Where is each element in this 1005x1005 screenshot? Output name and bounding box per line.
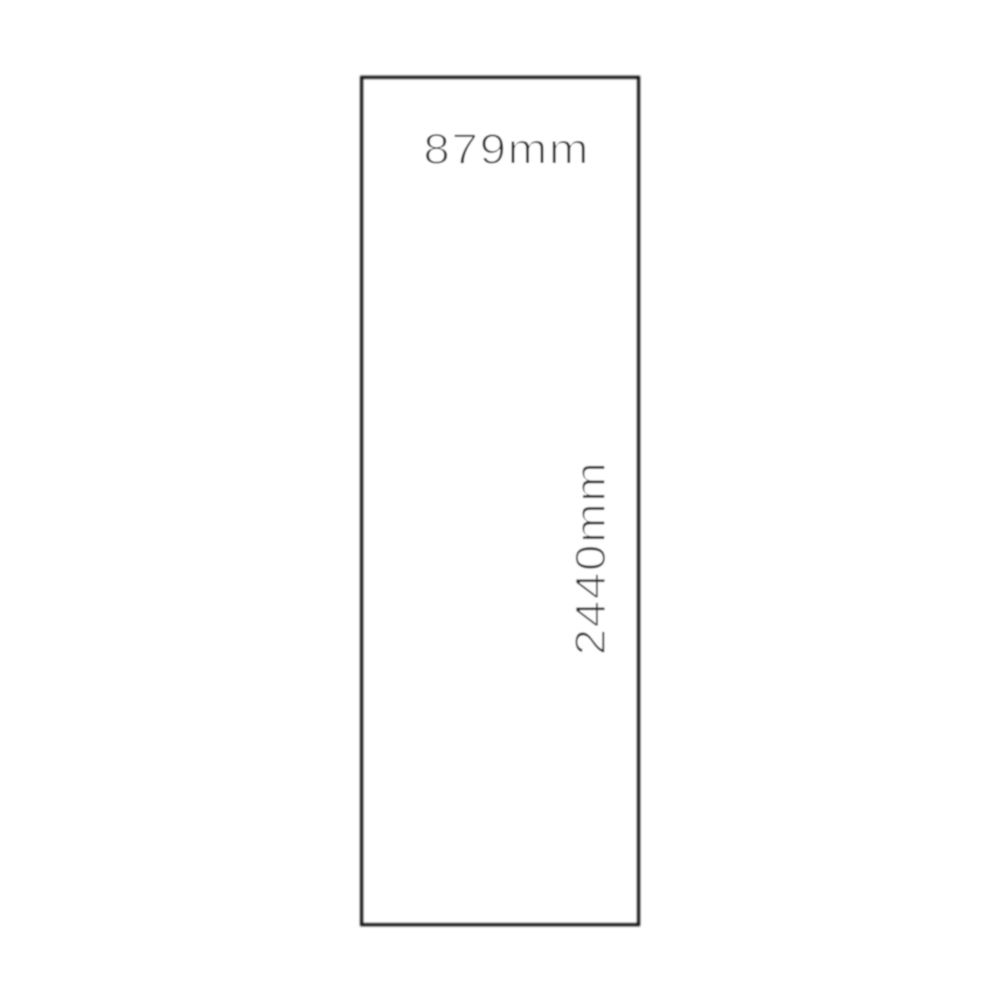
svg-text:2440mm: 2440mm <box>566 460 614 655</box>
svg-text:879mm: 879mm <box>423 125 590 173</box>
